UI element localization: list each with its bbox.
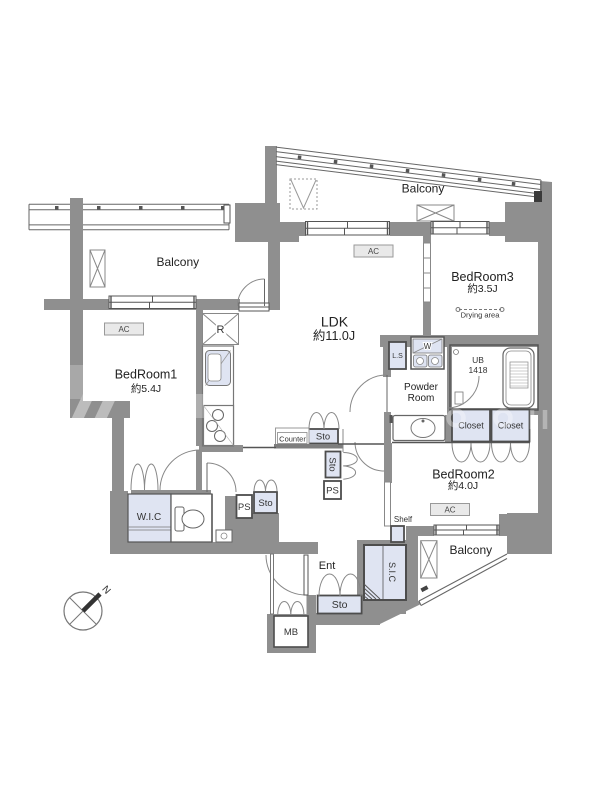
svg-text:Sto: Sto	[332, 599, 348, 611]
svg-text:約5.4J: 約5.4J	[131, 382, 161, 395]
svg-text:MB: MB	[284, 627, 298, 638]
svg-text:PS: PS	[238, 502, 251, 513]
svg-text:Room: Room	[408, 393, 435, 404]
svg-text:AC: AC	[368, 247, 379, 256]
svg-text:Balcony: Balcony	[402, 182, 445, 196]
svg-text:1418: 1418	[469, 365, 488, 375]
svg-text:約3.5J: 約3.5J	[467, 282, 497, 295]
svg-text:Drying area: Drying area	[461, 311, 501, 320]
svg-text:Balcony: Balcony	[156, 255, 199, 269]
svg-text:R: R	[217, 324, 225, 336]
svg-text:Sto: Sto	[316, 432, 330, 443]
svg-text:L.S: L.S	[392, 353, 403, 360]
svg-text:Shelf: Shelf	[394, 515, 413, 524]
svg-text:BedRoom3: BedRoom3	[451, 270, 514, 284]
svg-text:Balcony: Balcony	[449, 543, 492, 557]
svg-text:Ent: Ent	[319, 560, 336, 572]
svg-text:Sto: Sto	[258, 498, 272, 509]
svg-text:約4.0J: 約4.0J	[448, 479, 478, 492]
svg-text:AC: AC	[118, 325, 129, 334]
svg-text:LDK: LDK	[321, 314, 349, 330]
svg-text:S.I.C: S.I.C	[387, 562, 397, 583]
svg-text:W.I.C: W.I.C	[137, 512, 161, 523]
svg-text:W: W	[424, 342, 432, 351]
svg-text:UB: UB	[472, 355, 484, 365]
svg-text:PS: PS	[326, 485, 339, 496]
svg-text:Counter: Counter	[279, 435, 306, 444]
svg-text:Powder: Powder	[404, 382, 439, 393]
svg-text:約11.0J: 約11.0J	[313, 328, 355, 343]
svg-text:BedRoom1: BedRoom1	[115, 368, 178, 382]
svg-text:Sto: Sto	[327, 457, 338, 471]
svg-text:AC: AC	[444, 505, 455, 514]
